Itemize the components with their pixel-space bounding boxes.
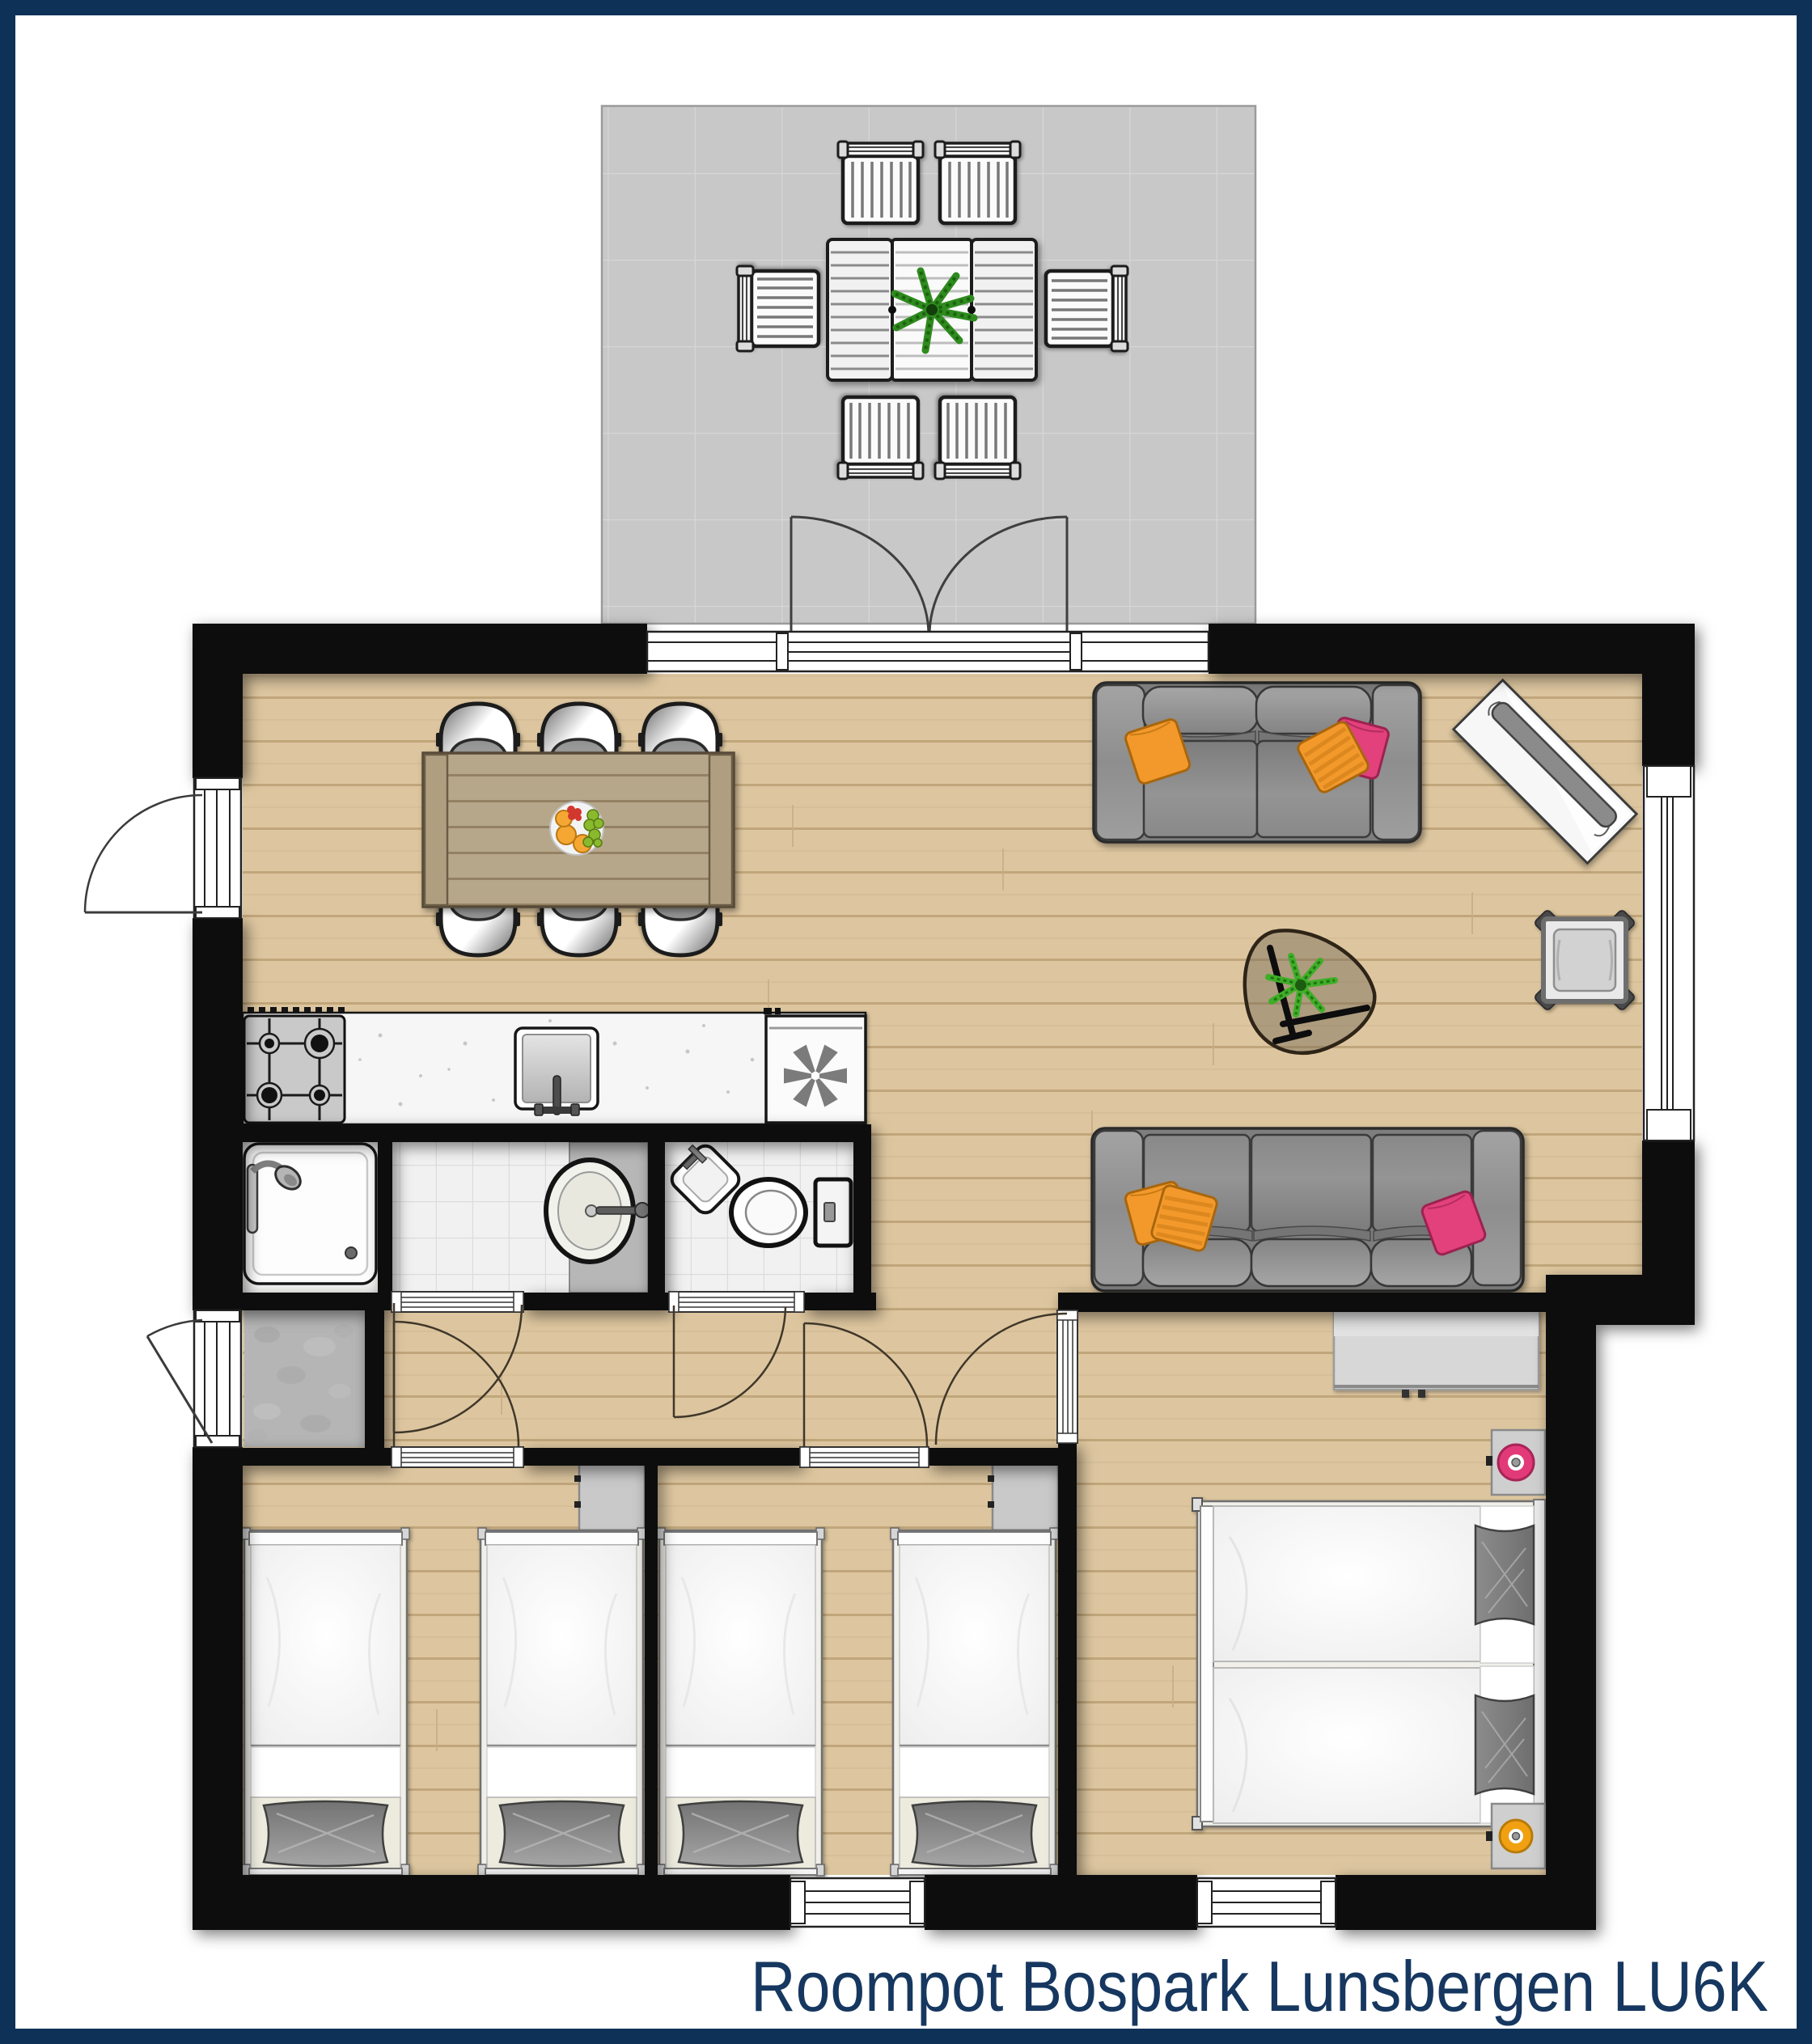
svg-text:Roompot Bospark Lunsbergen LU6: Roompot Bospark Lunsbergen LU6K [751, 1946, 1768, 2026]
